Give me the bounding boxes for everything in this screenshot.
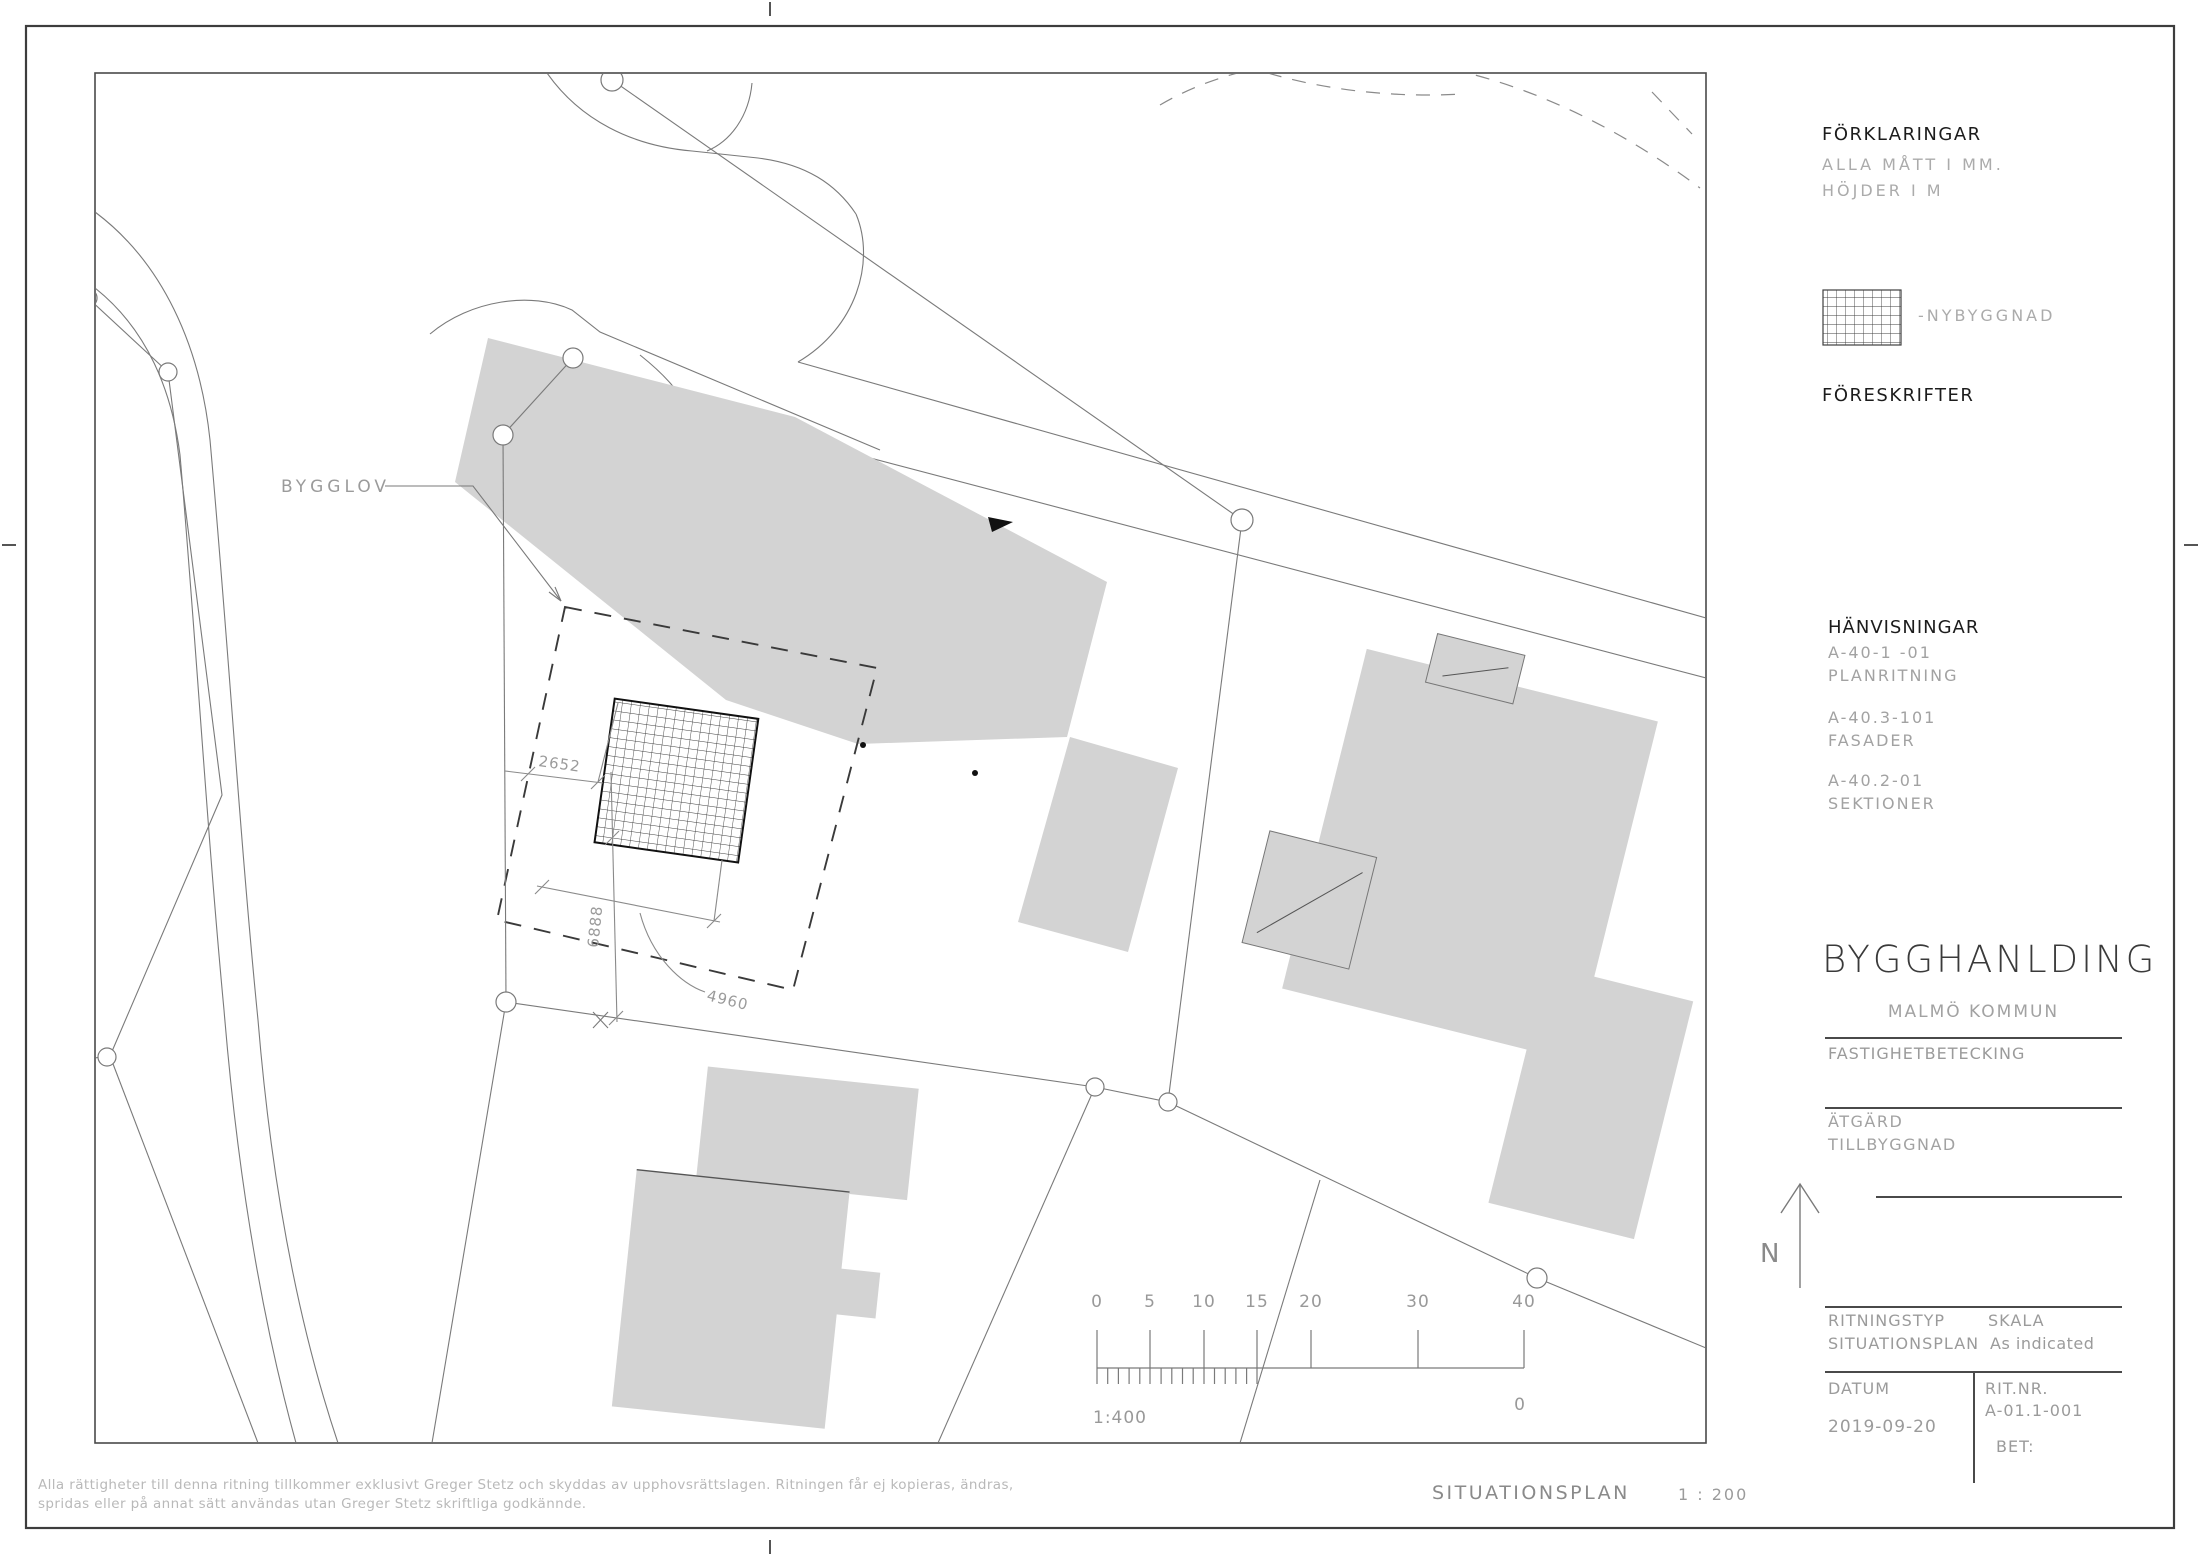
forklaringar-title: FÖRKLARINGAR [1822, 124, 1982, 145]
titleblock-rule [1825, 1306, 2122, 1308]
copyright-line1: Alla rättigheter till denna ritning till… [38, 1477, 1014, 1493]
dim-2652: 2652 [537, 752, 581, 776]
fastighet-label: FASTIGHETBETECKING [1828, 1044, 2025, 1063]
scalebar-tick-40: 40 [1512, 1292, 1536, 1312]
ritnr-label: RIT.NR. [1985, 1379, 2048, 1398]
atgard-label: ÄTGÄRD [1828, 1112, 1903, 1131]
bet-label: BET: [1996, 1437, 2035, 1456]
scalebar-tick-20: 20 [1299, 1292, 1323, 1312]
atgard-value: TILLBYGGNAD [1828, 1135, 1957, 1154]
dim-4960: 4960 [705, 986, 750, 1014]
scalebar-tick-15: 15 [1245, 1292, 1269, 1312]
scale-bar-labels: 0 5 10 15 20 30 40 1:400 0 [1091, 1292, 1536, 1428]
ritnr-value: A-01.1-001 [1985, 1401, 2083, 1420]
forklaringar-line1: ALLA MÅTT I MM. [1822, 155, 2004, 174]
ritningstyp-label: RITNINGSTYP [1828, 1311, 1945, 1330]
existing-buildings [455, 338, 1765, 1435]
building-bottom-left [612, 1060, 919, 1435]
ref-label: PLANRITNING [1828, 666, 1959, 685]
scalebar-scale-label: 1:400 [1093, 1408, 1147, 1428]
ref-label: SEKTIONER [1828, 794, 1936, 813]
building-top [455, 338, 1107, 744]
nybyggnad-legend-swatch [1823, 290, 1901, 345]
scale-bar [1097, 1330, 1524, 1384]
ritningstyp-value: SITUATIONSPLAN [1828, 1334, 1979, 1353]
building-middle [1018, 737, 1178, 952]
ref-code: A-40.3-101 [1828, 708, 1936, 727]
ref-code: A-40-1 -01 [1828, 643, 1932, 662]
scalebar-tick-30: 30 [1406, 1292, 1430, 1312]
scalebar-right-label: 0 [1514, 1395, 1526, 1415]
ref-code: A-40.2-01 [1828, 771, 1924, 790]
nybyggnad-legend-label: -NYBYGGNAD [1918, 306, 2055, 325]
datum-value: 2019-09-20 [1828, 1417, 1937, 1437]
titleblock-rule [1825, 1037, 2122, 1039]
dim-6888: 6888 [584, 905, 606, 949]
municipality: MALMÖ KOMMUN [1825, 1002, 2122, 1022]
copyright-line2: spridas eller på annat sätt användas uta… [38, 1496, 586, 1512]
view-title: SITUATIONSPLAN [1432, 1482, 1630, 1504]
titleblock-divider [1973, 1371, 1975, 1483]
ref-label: FASADER [1828, 731, 1916, 750]
building-right [1195, 606, 1764, 1239]
bygglov-label: BYGGLOV [281, 477, 390, 497]
view-scale: 1 : 200 [1678, 1485, 1748, 1504]
project-title: BYGGHANLDING [1822, 938, 2157, 981]
scalebar-tick-5: 5 [1144, 1292, 1156, 1312]
north-label: N [1760, 1239, 1779, 1269]
datum-label: DATUM [1828, 1379, 1890, 1398]
titleblock-rule [1825, 1107, 2122, 1109]
scalebar-tick-10: 10 [1192, 1292, 1216, 1312]
point-marker [860, 742, 866, 748]
drawing-sheet: 0 5 10 15 20 30 40 1:400 0 BYGGLOV 2652 … [0, 0, 2200, 1556]
foreskrifter-title: FÖRESKRIFTER [1822, 385, 1974, 406]
contour-dashed-lines [1160, 59, 1700, 188]
hanvisningar-title: HÄNVISNINGAR [1828, 617, 1979, 638]
skala-label: SKALA [1988, 1311, 2045, 1330]
titleblock-rule [1876, 1196, 2122, 1198]
north-arrow-icon [1781, 1184, 1819, 1288]
scalebar-tick-0: 0 [1091, 1292, 1103, 1312]
nybyggnad-hatched-building [595, 699, 759, 863]
skala-value: As indicated [1990, 1334, 2094, 1353]
point-marker [972, 770, 978, 776]
forklaringar-line2: HÖJDER I M [1822, 181, 1944, 200]
